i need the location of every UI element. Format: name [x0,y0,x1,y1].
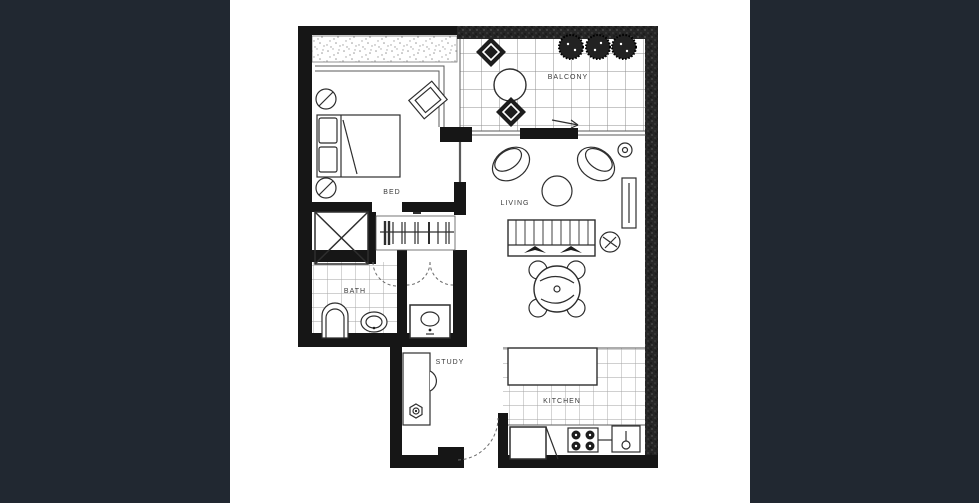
bedroom-chair [409,81,447,119]
dining-set [529,261,585,317]
basin [361,312,387,332]
kitchen-sink [612,426,640,452]
balcony-label: BALCONY [548,74,588,81]
laundry-sink-unit [410,305,450,338]
wardrobe-rail [376,213,455,250]
bed-label: BED [383,189,400,196]
balcony-plants [559,35,636,59]
armchair-left [486,140,536,188]
tv-unit [622,178,636,228]
right-letterbox-bar [750,0,979,503]
sofa [508,220,595,256]
bed-furniture [317,115,400,177]
fridge [510,427,558,459]
screenshot-stage: BED [0,0,979,503]
bedside-table-top [316,89,336,109]
floor-plan-canvas: BED [230,0,750,503]
bath-label: BATH [344,288,366,295]
cooktop [568,428,612,452]
terrace-stipple-band [312,36,457,62]
stool [600,232,620,252]
bedside-table-bottom [316,178,336,198]
balcony-table [494,69,526,101]
study-label: STUDY [436,359,465,366]
left-letterbox-bar [0,0,230,503]
living-label: LIVING [501,200,530,207]
cupboard-door-arcs [407,262,453,285]
kitchen-bench [508,348,597,385]
study-desk [403,353,436,425]
kitchen-label: KITCHEN [543,398,581,405]
toilet [322,303,348,338]
coffee-table [542,176,572,206]
floor-plan-svg: BED [230,0,750,503]
side-table [618,143,632,157]
armchair-right [571,140,621,188]
